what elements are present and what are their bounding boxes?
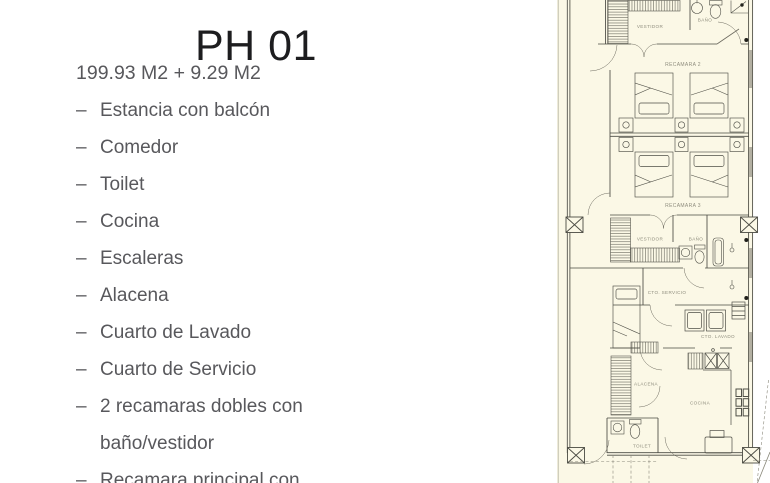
room-label-cocina: COCINA — [690, 401, 711, 406]
room-label-vestidor-2: VESTIDOR — [637, 24, 664, 29]
bullet-dash: – — [76, 129, 100, 166]
room-label-cto-lavado: CTO. LAVADO — [701, 334, 735, 339]
feature-item-toilet: –Toilet — [76, 166, 336, 203]
feature-text: 2 recamaras dobles con baño/vestidor — [100, 388, 328, 462]
bullet-dash: – — [76, 388, 100, 462]
feature-item-estancia: –Estancia con balcón — [76, 92, 336, 129]
feature-item-recamara-principal: –Recamara principal con — [76, 462, 336, 483]
bullet-dash: – — [76, 92, 100, 129]
feature-item-cuarto-lavado: –Cuarto de Lavado — [76, 314, 336, 351]
feature-item-cuarto-servicio: –Cuarto de Servicio — [76, 351, 336, 388]
room-label-alacena: ALACENA — [634, 382, 658, 387]
feature-list: –Estancia con balcón –Comedor –Toilet –C… — [76, 92, 336, 483]
feature-text: Alacena — [100, 277, 328, 314]
brochure-page: PH 01 199.93 M2 + 9.29 M2 –Estancia con … — [0, 0, 770, 483]
feature-item-alacena: –Alacena — [76, 277, 336, 314]
bullet-dash: – — [76, 166, 100, 203]
room-label-vestidor-3: VESTIDOR — [637, 237, 664, 242]
bullet-dash: – — [76, 314, 100, 351]
feature-text: Comedor — [100, 129, 328, 166]
feature-text: Toilet — [100, 166, 328, 203]
feature-item-comedor: –Comedor — [76, 129, 336, 166]
floor-plan: VESTIDOR BAÑO RECAMARA 2 RECAMARA 3 VEST… — [555, 0, 770, 483]
bullet-dash: – — [76, 240, 100, 277]
feature-text: Cuarto de Servicio — [100, 351, 328, 388]
room-label-toilet: TOILET — [633, 444, 651, 449]
feature-item-escaleras: –Escaleras — [76, 240, 336, 277]
feature-text: Estancia con balcón — [100, 92, 328, 129]
room-label-recamara-2: RECAMARA 2 — [665, 62, 701, 68]
room-label-recamara-3: RECAMARA 3 — [665, 203, 701, 209]
room-label-cto-servicio: CTO. SERVICIO — [648, 290, 687, 295]
feature-item-recamaras-dobles: –2 recamaras dobles con baño/vestidor — [76, 388, 336, 462]
room-label-bano-3: BAÑO — [689, 236, 703, 242]
bullet-dash: – — [76, 351, 100, 388]
feature-text: Cuarto de Lavado — [100, 314, 328, 351]
bullet-dash: – — [76, 277, 100, 314]
floor-plan-drawing: VESTIDOR BAÑO RECAMARA 2 RECAMARA 3 VEST… — [555, 0, 770, 483]
feature-text: Cocina — [100, 203, 328, 240]
room-label-bano-2: BAÑO — [698, 17, 712, 23]
bullet-dash: – — [76, 462, 100, 483]
feature-text: Recamara principal con — [100, 462, 328, 483]
bullet-dash: – — [76, 203, 100, 240]
feature-item-cocina: –Cocina — [76, 203, 336, 240]
feature-text: Escaleras — [100, 240, 328, 277]
area-text: 199.93 M2 + 9.29 M2 — [76, 61, 261, 86]
